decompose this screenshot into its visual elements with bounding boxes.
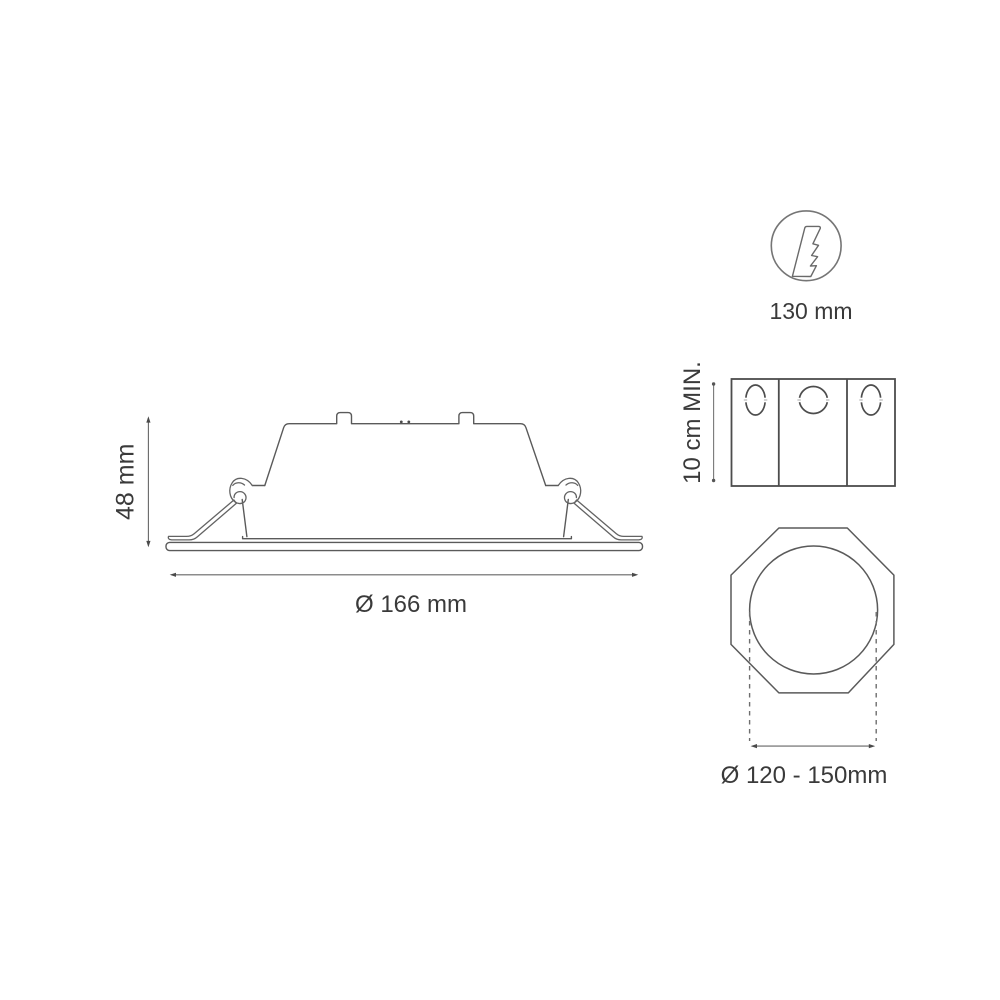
svg-text:48 mm: 48 mm: [112, 444, 140, 520]
svg-text:Ø 166 mm: Ø 166 mm: [355, 591, 467, 618]
svg-text:10 cm MIN.: 10 cm MIN.: [679, 361, 706, 484]
svg-text:130 mm: 130 mm: [769, 298, 852, 324]
svg-text:Ø 120 - 150mm: Ø 120 - 150mm: [721, 762, 888, 789]
